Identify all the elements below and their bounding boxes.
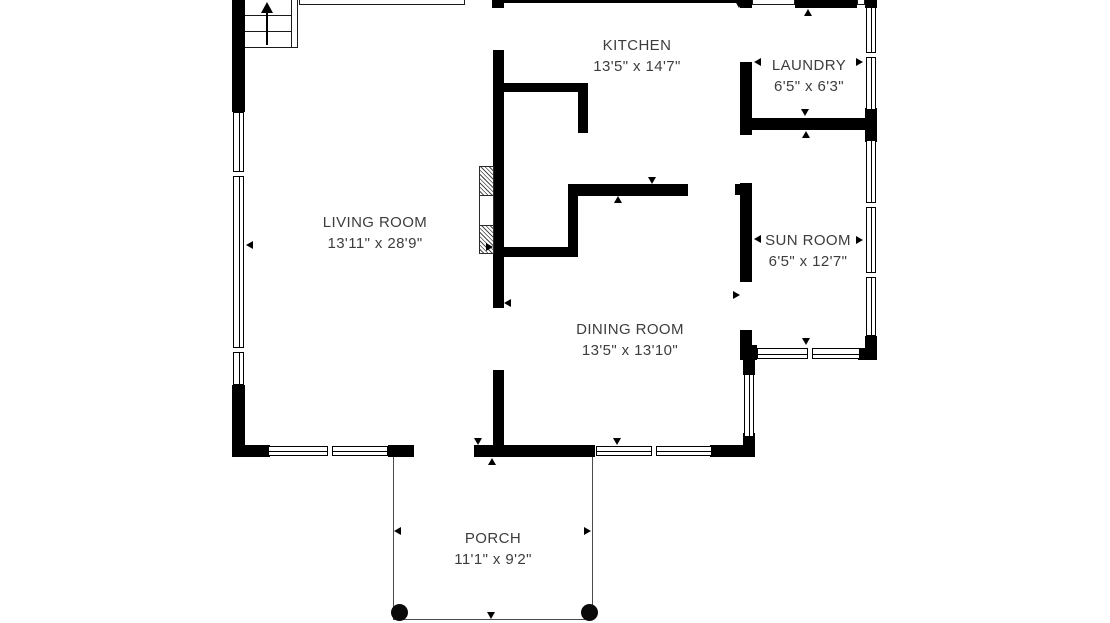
wall-sunroom-right-bottom-corner (865, 336, 877, 360)
window-living-left (233, 112, 244, 385)
porch-edge-right (592, 457, 593, 620)
room-name: SUN ROOM (765, 230, 851, 251)
dimension-arrow-laundry-top (804, 9, 812, 16)
dimension-arrow-laundry-bottom (801, 109, 809, 116)
dimension-arrow-living-right (486, 243, 493, 251)
dimension-arrow-dining-top (614, 196, 622, 203)
wall-top-living-outline (299, 0, 465, 5)
window-divider (866, 202, 876, 208)
dimension-arrow-porch-bottom (487, 612, 495, 619)
room-dimensions: 13'11" x 28'9" (323, 233, 427, 254)
stair-tread (245, 31, 291, 32)
wall-kitchen-top (504, 0, 752, 3)
wall-laundry-top-outline-right (857, 0, 865, 5)
room-dimensions: 13'5" x 13'10" (576, 340, 684, 361)
window-laundry-right (866, 7, 876, 110)
room-name: LAUNDRY (772, 55, 846, 76)
wall-divider-right-c (740, 330, 752, 360)
room-dimensions: 11'1" x 9'2" (454, 549, 532, 570)
porch-column (391, 604, 408, 621)
room-dimensions: 6'5" x 6'3" (772, 76, 846, 97)
room-name: DINING ROOM (576, 319, 684, 340)
window-centerline (239, 113, 240, 384)
dimension-arrow-wall-stub-right (735, 1, 743, 8)
window-sunroom-bottom (757, 348, 860, 359)
dimension-arrow-laundry-left (754, 58, 761, 66)
room-label-living-room: LIVING ROOM 13'11" x 28'9" (323, 212, 427, 254)
room-label-dining-room: DINING ROOM 13'5" x 13'10" (576, 319, 684, 361)
stair-tread (245, 47, 298, 48)
stair-stringer-line (297, 0, 298, 47)
wall-laundry-top (795, 0, 857, 8)
wall-laundry-top-outline-left (752, 0, 795, 5)
dimension-arrow-sunroom-right (856, 236, 863, 244)
porch-edge-left (393, 457, 394, 620)
window-centerline (749, 375, 750, 436)
stair-stringer-line (291, 0, 292, 47)
dimension-arrow-wall-stub-left (494, 1, 502, 8)
wall-divider-main-lower (493, 370, 504, 457)
window-dining-right (744, 374, 754, 437)
dimension-arrow-kitchen-bottom (648, 177, 656, 184)
room-dimensions: 13'5" x 14'7" (593, 56, 680, 77)
dimension-arrow-living-left (246, 241, 253, 249)
wall-divider-main (493, 50, 504, 308)
wall-divider-right-b (740, 183, 752, 282)
window-divider (233, 347, 244, 353)
wall-dining-top (568, 184, 688, 196)
dimension-arrow-sunroom-left (754, 235, 761, 243)
wall-left-upper (232, 0, 245, 112)
room-label-porch: PORCH 11'1" x 9'2" (454, 528, 532, 570)
dimension-arrow-sunroom-top (802, 131, 810, 138)
dimension-arrow-porch-left (394, 527, 401, 535)
dimension-arrow-dining-bottom (613, 438, 621, 445)
dimension-arrow-dining-right (733, 291, 740, 299)
window-centerline (871, 141, 872, 335)
fireplace-middle (480, 195, 493, 226)
wall-divider-right-tee (735, 184, 752, 195)
wall-right-mid-corner (865, 108, 877, 142)
stair-tread (245, 15, 291, 16)
room-name: PORCH (454, 528, 532, 549)
fireplace-hatch-top (480, 167, 493, 195)
staircase (245, 0, 300, 48)
window-divider (327, 446, 333, 456)
window-divider (866, 52, 876, 58)
room-label-kitchen: KITCHEN 13'5" x 14'7" (593, 35, 680, 77)
porch-column (581, 604, 598, 621)
room-dimensions: 6'5" x 12'7" (765, 251, 851, 272)
room-name: KITCHEN (593, 35, 680, 56)
floor-plan: LIVING ROOM 13'11" x 28'9" KITCHEN 13'5"… (0, 0, 1110, 623)
window-dining-bottom (596, 446, 712, 456)
window-living-bottom (268, 446, 388, 456)
window-centerline (871, 8, 872, 109)
window-divider (233, 171, 244, 177)
dimension-arrow-sunroom-bottom (802, 338, 810, 345)
dimension-arrow-porch-right (584, 527, 591, 535)
dimension-arrow-laundry-right (856, 58, 863, 66)
window-divider (651, 446, 657, 456)
wall-bottom-living-left (232, 445, 270, 457)
porch-edge-bottom (393, 619, 593, 620)
wall-pantry-bottom (504, 247, 578, 257)
window-sunroom-right (866, 140, 876, 336)
wall-pantry-top (504, 83, 588, 92)
window-divider (866, 272, 876, 278)
stair-direction-line (266, 13, 268, 45)
room-name: LIVING ROOM (323, 212, 427, 233)
wall-divider-right-a (740, 62, 752, 135)
window-divider (807, 348, 813, 359)
dimension-arrow-porch-top (488, 458, 496, 465)
wall-pantry-right-upper (578, 92, 588, 133)
room-label-sun-room: SUN ROOM 6'5" x 12'7" (765, 230, 851, 272)
stair-direction-arrow-icon (261, 2, 273, 13)
wall-bottom-living-right (388, 445, 414, 457)
dimension-arrow-living-bottom (474, 438, 482, 445)
wall-laundry-bottom (752, 118, 865, 130)
room-label-laundry: LAUNDRY 6'5" x 6'3" (772, 55, 846, 97)
dimension-arrow-dining-left (504, 299, 511, 307)
fireplace (479, 166, 494, 254)
